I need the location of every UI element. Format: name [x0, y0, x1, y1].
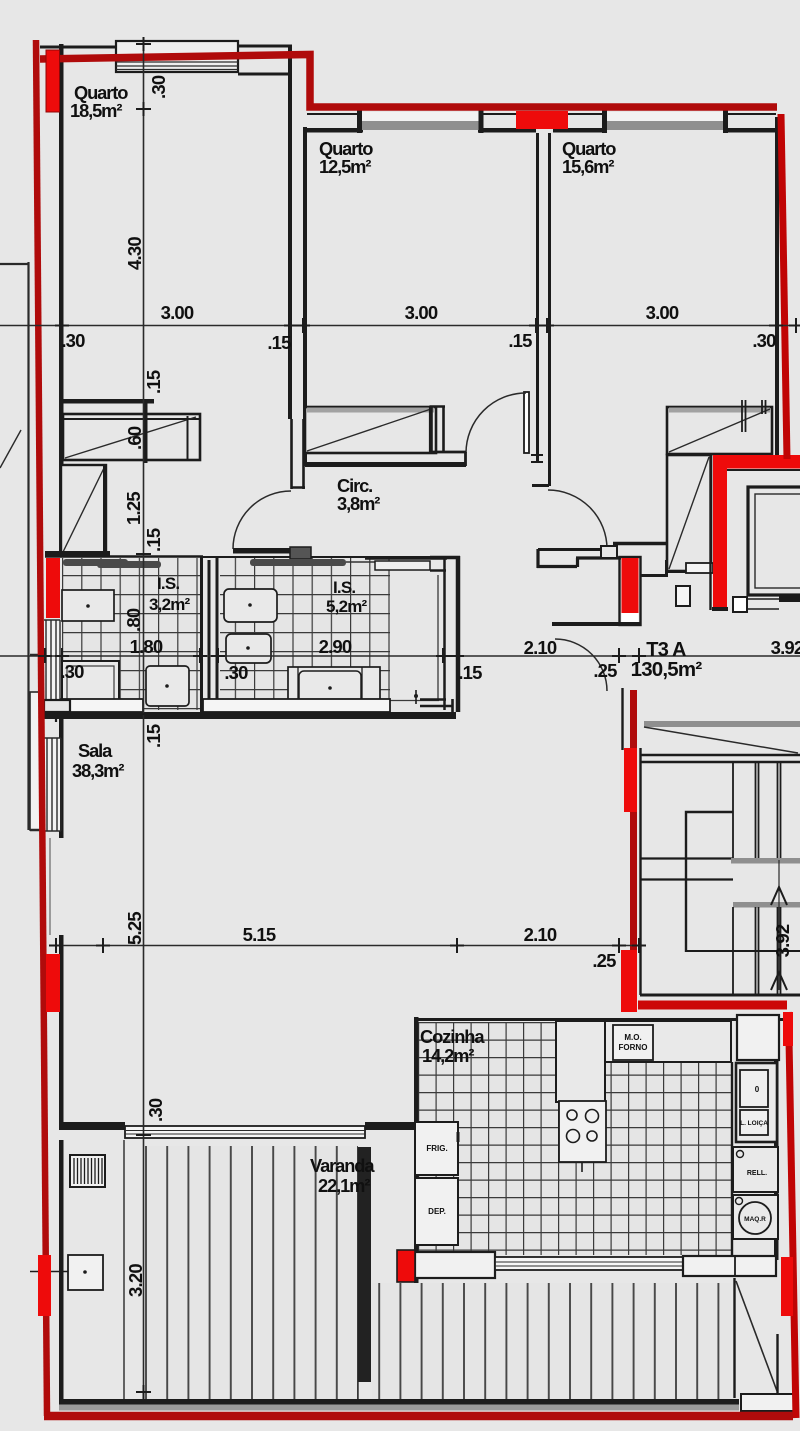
svg-text:12,5m²: 12,5m²: [319, 156, 371, 177]
svg-text:2.10: 2.10: [524, 637, 557, 658]
svg-text:.30: .30: [224, 662, 248, 683]
svg-text:.25: .25: [593, 660, 617, 681]
svg-text:.60: .60: [124, 426, 145, 450]
svg-text:.80: .80: [123, 608, 144, 632]
svg-text:.15: .15: [458, 662, 482, 683]
svg-text:3.00: 3.00: [405, 302, 438, 323]
svg-text:M.O.: M.O.: [624, 1033, 641, 1042]
svg-text:3.00: 3.00: [646, 302, 679, 323]
svg-text:2.10: 2.10: [524, 924, 557, 945]
svg-text:0: 0: [755, 1085, 760, 1094]
svg-text:.25: .25: [592, 950, 616, 971]
svg-text:3,2m²: 3,2m²: [149, 595, 191, 614]
svg-text:3.00: 3.00: [161, 302, 194, 323]
svg-text:.15: .15: [143, 528, 164, 552]
svg-text:38,3m²: 38,3m²: [72, 760, 124, 781]
svg-text:.30: .30: [60, 661, 84, 682]
svg-text:15,6m²: 15,6m²: [562, 156, 614, 177]
svg-text:130,5m²: 130,5m²: [631, 658, 703, 681]
svg-text:I.S.: I.S.: [333, 578, 355, 597]
svg-text:3.92: 3.92: [772, 924, 793, 957]
svg-text:3,8m²: 3,8m²: [337, 493, 380, 514]
svg-text:3.92: 3.92: [771, 637, 800, 658]
svg-text:5,2m²: 5,2m²: [326, 597, 368, 616]
svg-text:.30: .30: [145, 1098, 166, 1122]
svg-text:Sala: Sala: [78, 740, 113, 761]
svg-text:3.20: 3.20: [125, 1264, 146, 1297]
svg-text:5.15: 5.15: [243, 924, 276, 945]
svg-text:1.80: 1.80: [130, 636, 163, 657]
svg-text:2.90: 2.90: [319, 636, 352, 657]
svg-text:.30: .30: [61, 330, 85, 351]
svg-text:.15: .15: [508, 330, 532, 351]
svg-text:FRIG.: FRIG.: [426, 1144, 447, 1153]
svg-text:MAQ.R: MAQ.R: [744, 1216, 766, 1223]
svg-text:5.25: 5.25: [124, 912, 145, 945]
svg-text:Varanda: Varanda: [310, 1155, 375, 1176]
svg-text:RELL.: RELL.: [747, 1170, 767, 1177]
svg-text:18,5m²: 18,5m²: [70, 100, 122, 121]
svg-text:4.30: 4.30: [124, 237, 145, 270]
svg-text:22,1m²: 22,1m²: [318, 1175, 370, 1196]
svg-text:.15: .15: [143, 724, 164, 748]
svg-text:Cozinha: Cozinha: [420, 1026, 485, 1047]
svg-text:I.S.: I.S.: [157, 574, 179, 593]
svg-text:FORNO: FORNO: [619, 1043, 648, 1052]
svg-text:.30: .30: [148, 75, 169, 99]
svg-text:.15: .15: [143, 370, 164, 394]
svg-text:1.25: 1.25: [123, 492, 144, 525]
svg-text:14,2m²: 14,2m²: [422, 1045, 474, 1066]
svg-text:L. LOIÇA: L. LOIÇA: [740, 1120, 768, 1127]
svg-text:DEP.: DEP.: [428, 1207, 446, 1216]
svg-text:.30: .30: [752, 330, 776, 351]
svg-text:.15: .15: [267, 332, 291, 353]
